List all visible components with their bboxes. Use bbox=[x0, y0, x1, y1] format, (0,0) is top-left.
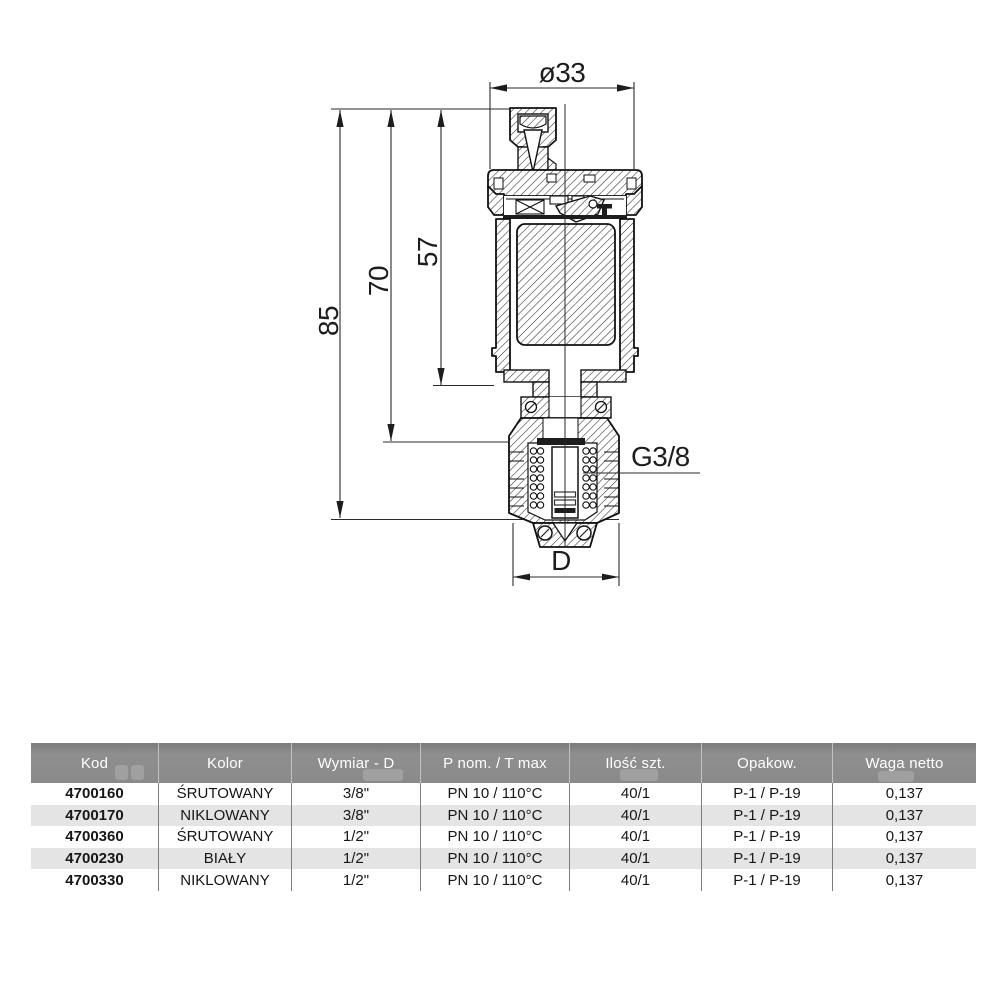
dim-label-outlet: D bbox=[551, 545, 571, 576]
dim-label-thread: G3/8 bbox=[631, 441, 690, 472]
column-header-pnom: P nom. / T max bbox=[420, 743, 569, 783]
table-cell: P-1 / P-19 bbox=[701, 805, 832, 827]
table-cell: 4700230 bbox=[31, 848, 158, 870]
table-cell: 40/1 bbox=[569, 869, 701, 891]
table-cell: 1/2" bbox=[291, 826, 420, 848]
table-cell: P-1 / P-19 bbox=[701, 869, 832, 891]
watermark-patch bbox=[620, 769, 658, 781]
table-cell: PN 10 / 110°C bbox=[420, 869, 569, 891]
table-cell: PN 10 / 110°C bbox=[420, 826, 569, 848]
table-cell: P-1 / P-19 bbox=[701, 783, 832, 805]
table-cell: P-1 / P-19 bbox=[701, 848, 832, 870]
table-cell: 0,137 bbox=[832, 783, 976, 805]
valve-vent-cap bbox=[510, 108, 556, 172]
table-cell: 0,137 bbox=[832, 826, 976, 848]
table-row: 4700360ŚRUTOWANY1/2"PN 10 / 110°C40/1P-1… bbox=[31, 826, 976, 848]
table-cell: P-1 / P-19 bbox=[701, 826, 832, 848]
oring-collar bbox=[521, 397, 611, 418]
column-header-kolor: Kolor bbox=[158, 743, 291, 783]
threaded-connector bbox=[509, 418, 619, 523]
valve-seat bbox=[537, 438, 585, 445]
table-cell: ŚRUTOWANY bbox=[158, 783, 291, 805]
table-cell: PN 10 / 110°C bbox=[420, 783, 569, 805]
column-header-opakow: Opakow. bbox=[701, 743, 832, 783]
dim-label-57: 57 bbox=[412, 237, 443, 267]
watermark-patch bbox=[878, 771, 914, 782]
spec-table: Kod Kolor Wymiar - D P nom. / T max Iloś… bbox=[31, 743, 976, 891]
table-cell: 3/8" bbox=[291, 805, 420, 827]
table-cell: PN 10 / 110°C bbox=[420, 848, 569, 870]
dim-label-70: 70 bbox=[363, 266, 394, 296]
table-cell: 1/2" bbox=[291, 848, 420, 870]
table-cell: ŚRUTOWANY bbox=[158, 826, 291, 848]
table-cell: 0,137 bbox=[832, 805, 976, 827]
spec-table-body: 4700160ŚRUTOWANY3/8"PN 10 / 110°C40/1P-1… bbox=[31, 783, 976, 891]
table-cell: 0,137 bbox=[832, 848, 976, 870]
table-cell: BIAŁY bbox=[158, 848, 291, 870]
table-row: 4700160ŚRUTOWANY3/8"PN 10 / 110°C40/1P-1… bbox=[31, 783, 976, 805]
table-cell: 4700330 bbox=[31, 869, 158, 891]
watermark-patch bbox=[363, 769, 403, 781]
dim-label-diameter: ø33 bbox=[539, 57, 586, 88]
table-row: 4700170NIKLOWANY3/8"PN 10 / 110°C40/1P-1… bbox=[31, 805, 976, 827]
table-cell: 0,137 bbox=[832, 869, 976, 891]
table-cell: 40/1 bbox=[569, 826, 701, 848]
technical-drawing: ø33 85 70 57 G3/8 D bbox=[0, 0, 1000, 740]
table-cell: 40/1 bbox=[569, 848, 701, 870]
table-cell: 40/1 bbox=[569, 805, 701, 827]
dim-label-85: 85 bbox=[313, 306, 344, 336]
watermark-patch bbox=[131, 765, 144, 780]
table-cell: 4700160 bbox=[31, 783, 158, 805]
table-cell: NIKLOWANY bbox=[158, 805, 291, 827]
table-cell: NIKLOWANY bbox=[158, 869, 291, 891]
spec-table-header: Kod Kolor Wymiar - D P nom. / T max Iloś… bbox=[31, 743, 976, 783]
table-row: 4700330NIKLOWANY1/2"PN 10 / 110°C40/1P-1… bbox=[31, 869, 976, 891]
watermark-patch bbox=[115, 765, 128, 780]
float bbox=[517, 224, 615, 345]
table-row: 4700230BIAŁY1/2"PN 10 / 110°C40/1P-1 / P… bbox=[31, 848, 976, 870]
table-cell: 4700170 bbox=[31, 805, 158, 827]
table-cell: PN 10 / 110°C bbox=[420, 805, 569, 827]
table-cell: 40/1 bbox=[569, 783, 701, 805]
table-cell: 4700360 bbox=[31, 826, 158, 848]
table-cell: 3/8" bbox=[291, 783, 420, 805]
table-cell: 1/2" bbox=[291, 869, 420, 891]
